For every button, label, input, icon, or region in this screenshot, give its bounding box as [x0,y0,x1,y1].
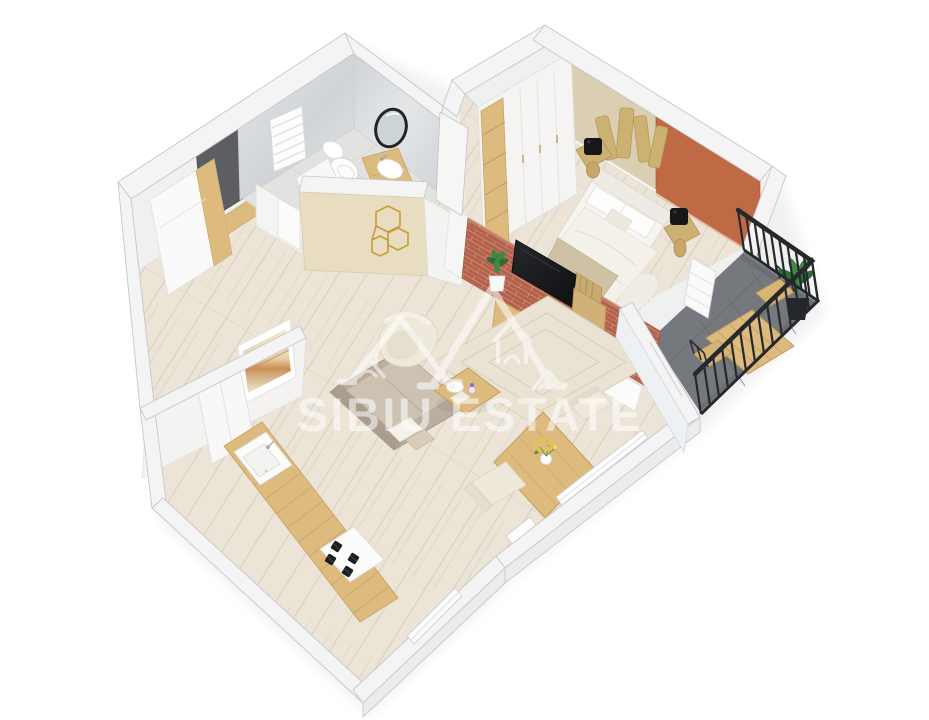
table-lamp-right-base [674,239,686,257]
bathroom-front-wall [299,192,430,276]
floorplan-3d-render: SIBIU ESTATE [0,0,929,720]
watermark-text: SIBIU ESTATE [297,388,644,441]
table-lamp-right [670,208,688,225]
table-lamp-left [584,138,602,155]
hall-tall-cabinet [436,112,468,216]
table-lamp-left-base [587,162,600,178]
